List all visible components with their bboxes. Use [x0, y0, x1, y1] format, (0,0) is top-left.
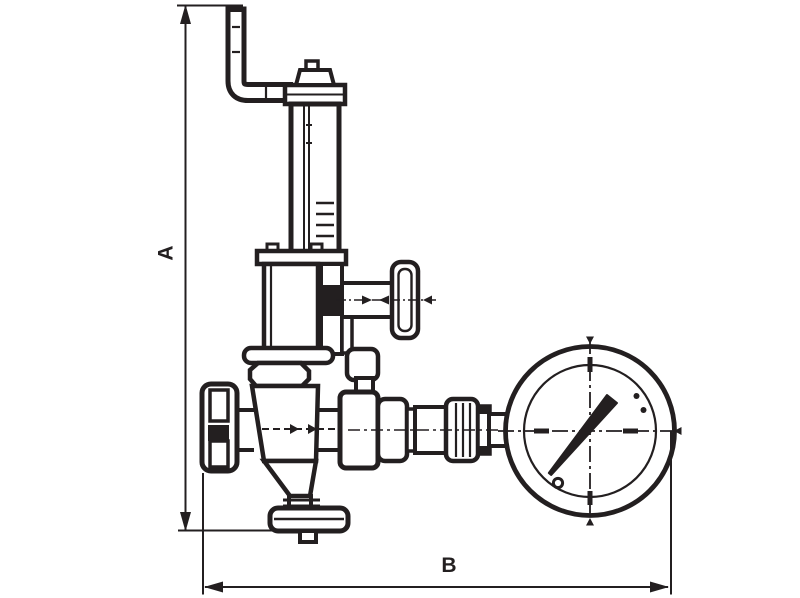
crosshair-tick	[534, 429, 549, 434]
right-boss	[347, 349, 378, 380]
body-block	[252, 386, 318, 461]
arrowhead-down	[180, 512, 191, 532]
crosshair-tick	[588, 357, 593, 372]
crosshair-tick	[623, 429, 638, 434]
crosshair-end-tick	[586, 337, 594, 345]
body-cone	[264, 461, 316, 496]
dial-dot	[634, 393, 640, 399]
arrowhead-left	[204, 582, 223, 593]
dimension-a-label: A	[155, 245, 178, 260]
crosshair-tick	[588, 491, 593, 505]
needle-hub	[553, 478, 562, 487]
centerline-arrow	[423, 296, 432, 305]
outlet-union	[340, 392, 508, 468]
valve-drawing: A B	[0, 0, 800, 598]
arrowhead-right	[650, 582, 669, 593]
adjustment-cap	[296, 70, 334, 85]
crosshair-end-tick	[586, 518, 594, 526]
arrowhead-up	[180, 5, 191, 25]
dial-dot	[641, 407, 647, 413]
inlet-fitting	[202, 384, 254, 471]
housing-cylinder	[291, 104, 339, 252]
bonnet-assembly	[264, 262, 437, 354]
pressure-gauge	[498, 337, 682, 526]
hex-boss	[250, 363, 309, 386]
dimension-b-label: B	[441, 554, 456, 577]
inlet-band	[208, 425, 229, 441]
technical-drawing-canvas: A B	[0, 0, 800, 598]
flange-nub	[300, 531, 316, 542]
valve-body	[252, 386, 348, 542]
